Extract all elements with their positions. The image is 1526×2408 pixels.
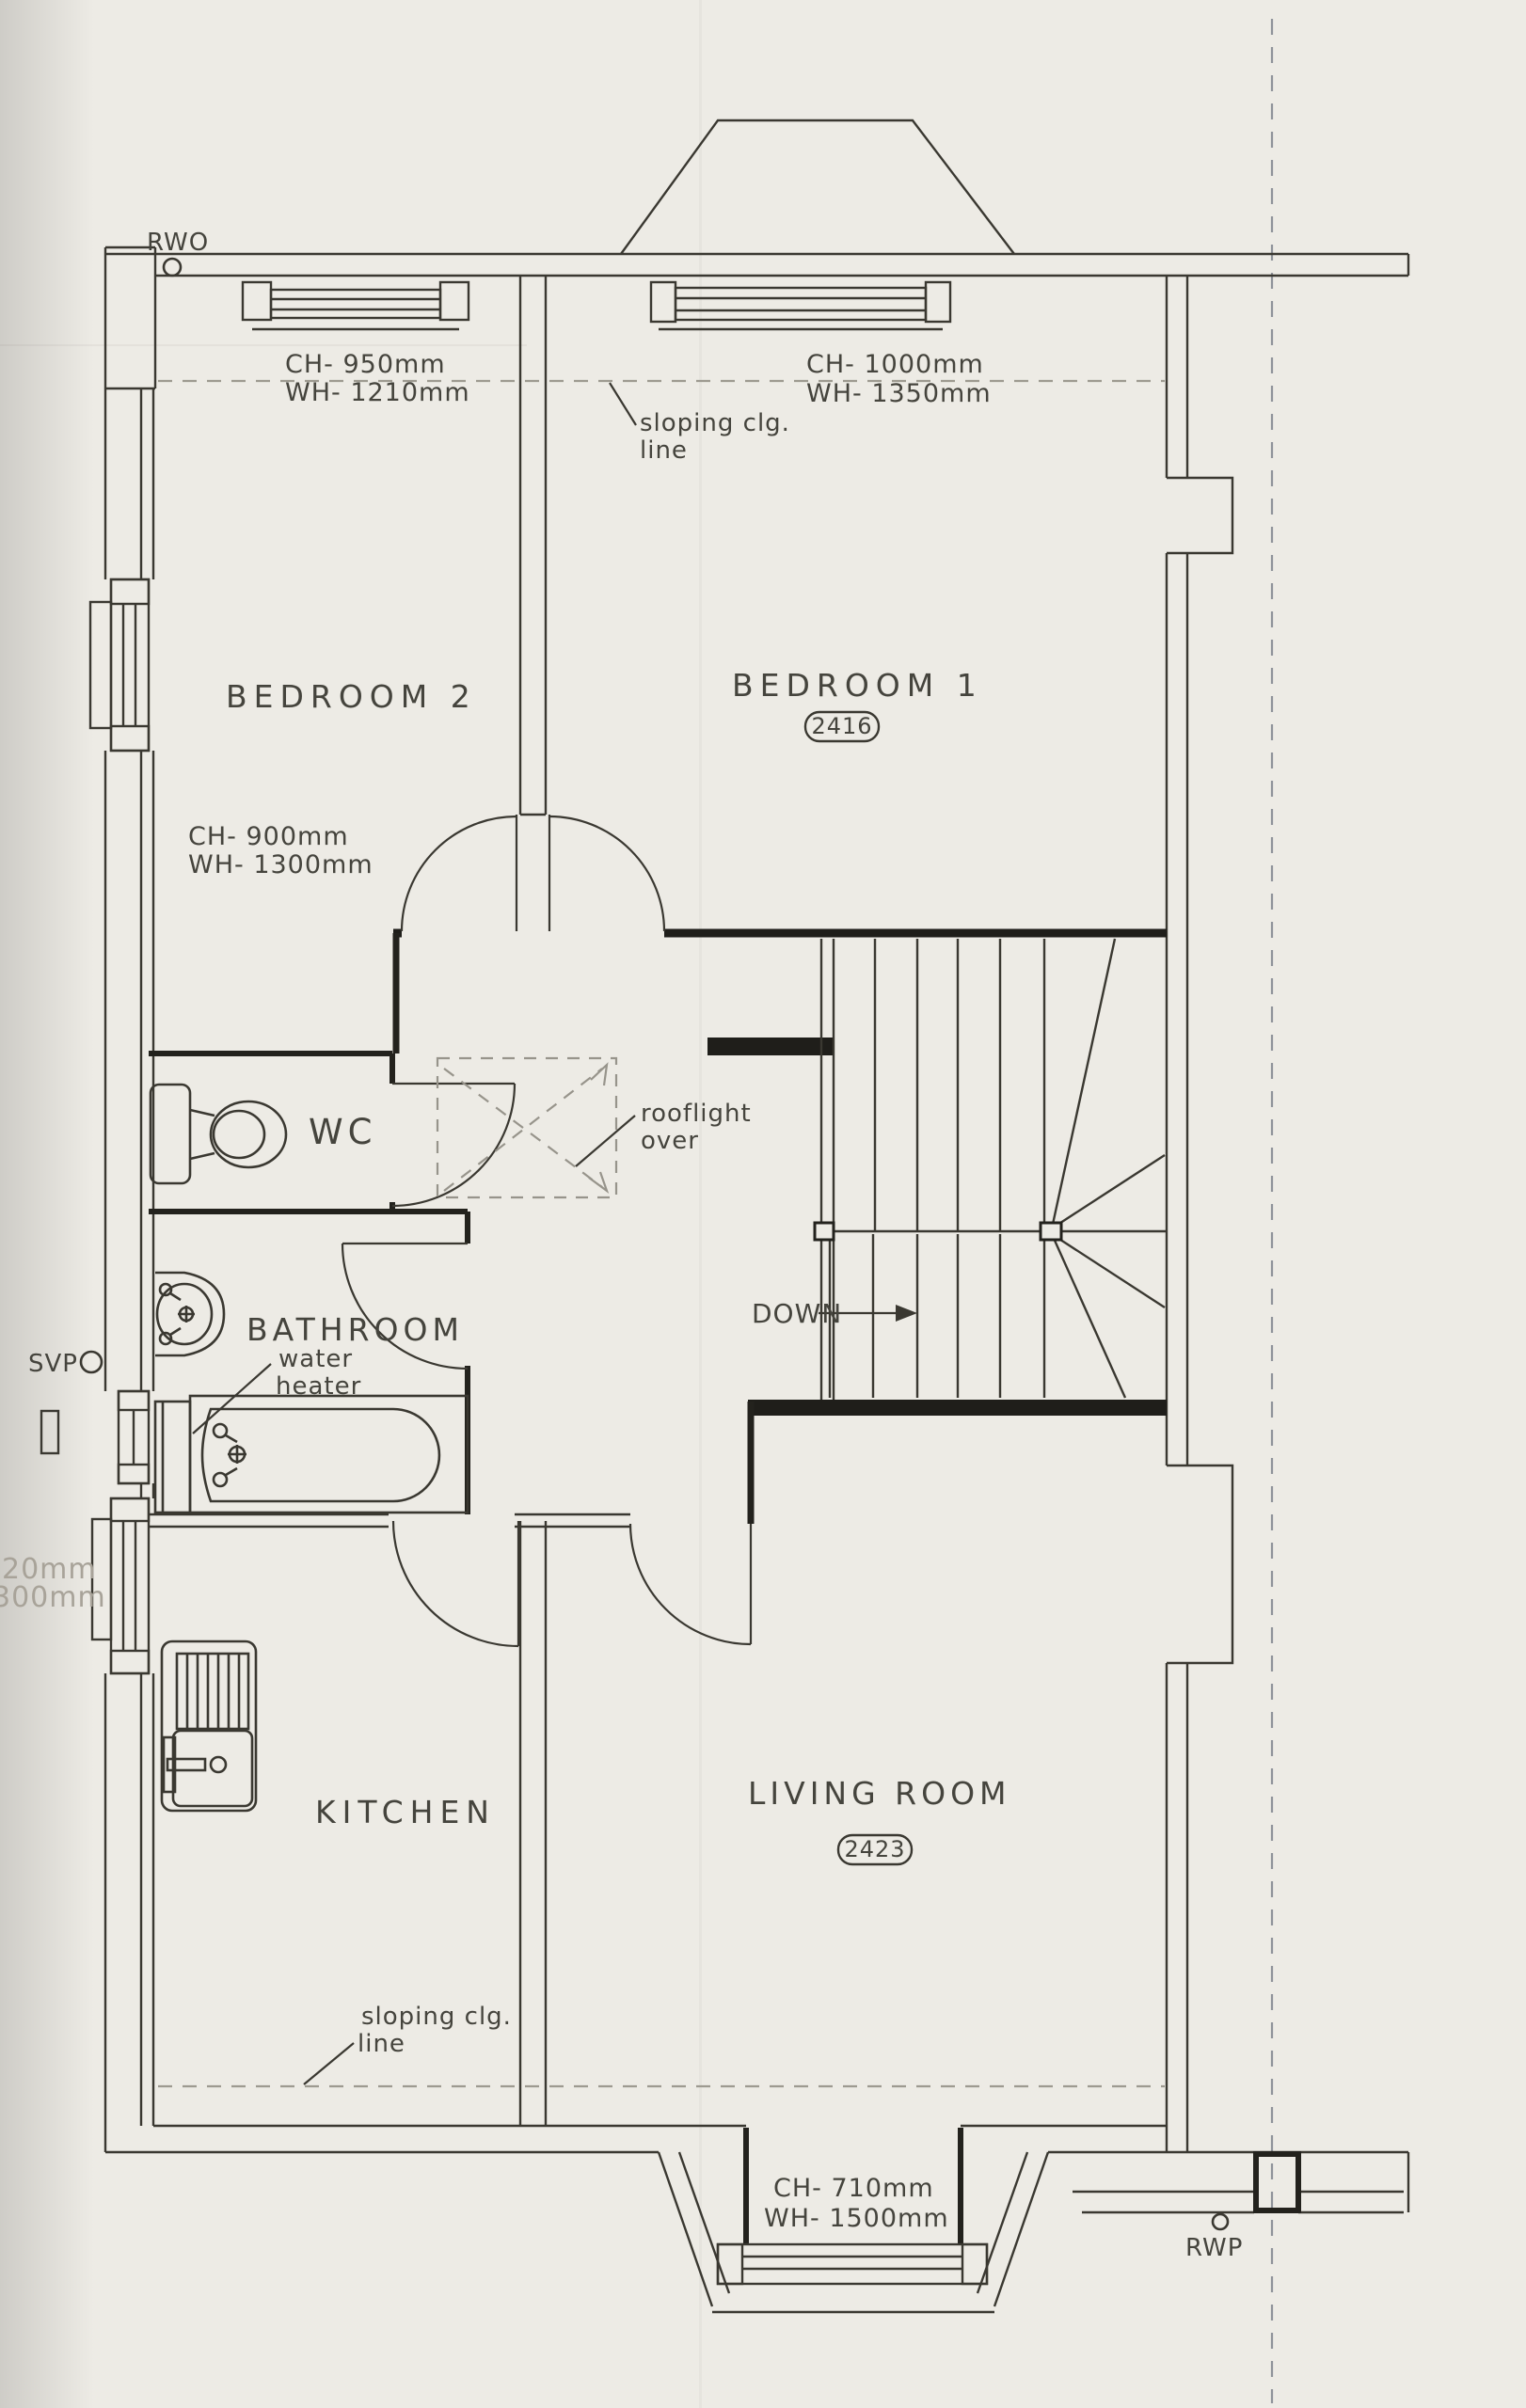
- bedroom2-window-wh: WH- 1210mm: [285, 378, 470, 407]
- bedroom1-door: [549, 815, 664, 931]
- bay-window-ch: CH- 710mm: [773, 2174, 934, 2203]
- sloping-bottom-leader: [304, 2043, 354, 2084]
- bedroom2-label: BEDROOM 2: [226, 678, 477, 715]
- bedroom1-recess: [1167, 478, 1232, 553]
- bedroom1-front-window: [651, 282, 950, 329]
- bedroom1-label: BEDROOM 1: [732, 667, 983, 704]
- living-room-label: LIVING ROOM: [748, 1775, 1011, 1812]
- edge-partial-label-2: 300mm: [0, 1581, 106, 1614]
- sloping-top-leader: [610, 383, 636, 425]
- sloping-top-label-2: line: [640, 436, 688, 465]
- toilet: [151, 1085, 286, 1183]
- sloping-bottom-label-1: sloping clg.: [361, 2003, 512, 2031]
- bedroom1-window-wh: WH- 1350mm: [806, 379, 992, 408]
- staircase: [815, 939, 1167, 1400]
- rooflight-label-1: rooflight: [641, 1100, 752, 1128]
- floor-plan-page: RWO CH- 950mm WH- 1210mm CH- 1000mm WH- …: [0, 0, 1526, 2408]
- living-room-code: 2423: [844, 1836, 905, 1862]
- water-heater-leader: [193, 1364, 271, 1434]
- newel-post: [1041, 1223, 1061, 1240]
- newel-post: [815, 1223, 834, 1240]
- rooflight-outline: [437, 1058, 616, 1197]
- bay-window-wh: WH- 1500mm: [764, 2204, 949, 2233]
- internal-walls: [149, 276, 1167, 2126]
- rooflight-label-2: over: [641, 1127, 699, 1155]
- water-heater-label-2: heater: [276, 1372, 361, 1401]
- down-label: DOWN: [752, 1298, 842, 1329]
- bathroom-side-window: [119, 1391, 149, 1483]
- bedroom2-window-ch: CH- 950mm: [285, 350, 446, 379]
- sloping-top-label-1: sloping clg.: [640, 409, 790, 437]
- rwo-label: RWO: [147, 229, 209, 257]
- kitchen-sink: [162, 1641, 256, 1811]
- fixtures: [151, 1085, 468, 1811]
- wc-label: WC: [309, 1112, 376, 1152]
- water-heater-cupboard: [155, 1402, 190, 1513]
- bathroom-label: BATHROOM: [246, 1311, 464, 1348]
- bedroom2-front-window: [243, 282, 469, 329]
- bottom-right-pier: [1256, 2154, 1298, 2210]
- rooflight-leader: [576, 1116, 635, 1166]
- rwo-symbol: [164, 259, 181, 276]
- water-heater-label-1: water: [278, 1345, 353, 1373]
- bedroom2-door: [402, 815, 517, 931]
- bedroom2-side-window: [90, 579, 149, 751]
- dashed-annotations: [158, 381, 1165, 2086]
- basin: [155, 1273, 224, 1355]
- bedroom2-ch: CH- 900mm: [188, 822, 349, 851]
- bathroom-door: [342, 1244, 468, 1369]
- bedroom2-wh: WH- 1300mm: [188, 850, 374, 879]
- rwp-symbol: [1213, 2214, 1228, 2229]
- down-arrow-head: [896, 1305, 917, 1322]
- kitchen-label: KITCHEN: [315, 1794, 496, 1830]
- living-recess: [1167, 1465, 1232, 1663]
- floor-plan-drawing: RWO CH- 950mm WH- 1210mm CH- 1000mm WH- …: [0, 0, 1526, 2408]
- kitchen-door: [393, 1521, 518, 1646]
- bathtub: [190, 1396, 468, 1513]
- gable-roof-outline: [621, 120, 1014, 254]
- living-room-door: [630, 1524, 751, 1644]
- svp-label: SVP: [28, 1350, 78, 1378]
- rwp-label: RWP: [1185, 2234, 1243, 2262]
- bedroom1-window-ch: CH- 1000mm: [806, 350, 984, 379]
- sloping-bottom-label-2: line: [358, 2030, 405, 2058]
- wc-door: [392, 1084, 515, 1206]
- bedroom1-code: 2416: [811, 713, 872, 739]
